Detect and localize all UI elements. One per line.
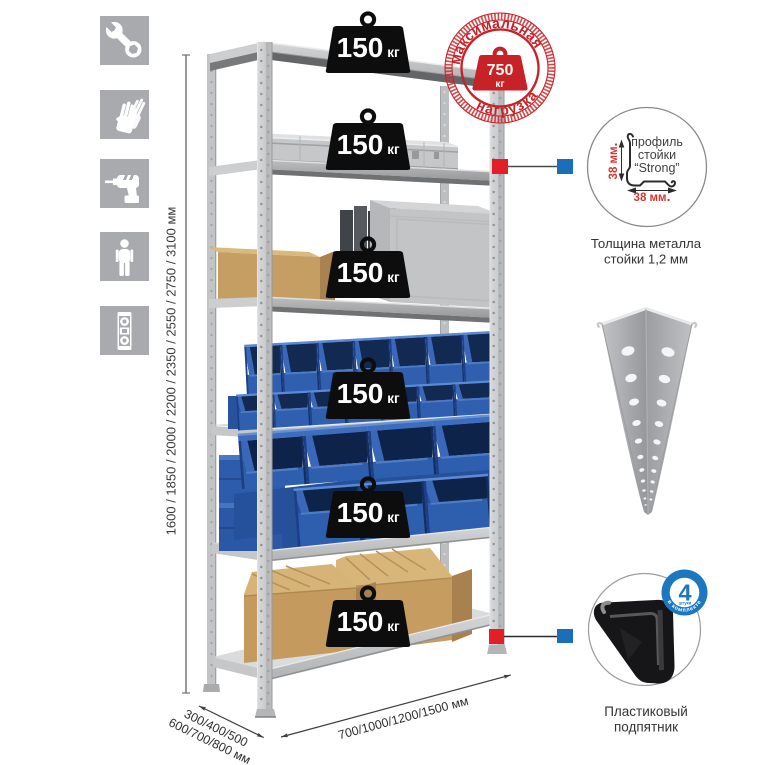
svg-text:150: 150 (337, 129, 384, 160)
svg-text:150: 150 (337, 257, 384, 288)
svg-text:750: 750 (487, 62, 514, 79)
svg-text:150: 150 (337, 497, 384, 528)
svg-text:стойки: стойки (638, 148, 676, 162)
svg-text:150: 150 (337, 606, 384, 637)
svg-text:кг: кг (387, 45, 400, 60)
svg-text:кг: кг (387, 142, 400, 157)
svg-text:150: 150 (337, 378, 384, 409)
svg-text:кг: кг (387, 270, 400, 285)
svg-text:1600 / 1850 / 2000 / 2200 / 23: 1600 / 1850 / 2000 / 2200 / 2350 / 2550 … (164, 207, 179, 536)
svg-text:штуки: штуки (679, 601, 692, 606)
svg-text:кг: кг (387, 510, 400, 525)
svg-text:Толщина металла: Толщина металла (591, 236, 702, 251)
svg-text:кг: кг (387, 391, 400, 406)
svg-text:кг: кг (495, 79, 504, 90)
svg-text:кг: кг (387, 619, 400, 634)
svg-text:стойки 1,2 мм: стойки 1,2 мм (604, 252, 688, 267)
svg-text:Пластиковый: Пластиковый (604, 704, 688, 719)
svg-text:150: 150 (337, 32, 384, 63)
svg-text:“Strong”: “Strong” (634, 161, 679, 175)
svg-text:профиль: профиль (631, 135, 683, 149)
svg-text:подпятник: подпятник (614, 720, 678, 735)
